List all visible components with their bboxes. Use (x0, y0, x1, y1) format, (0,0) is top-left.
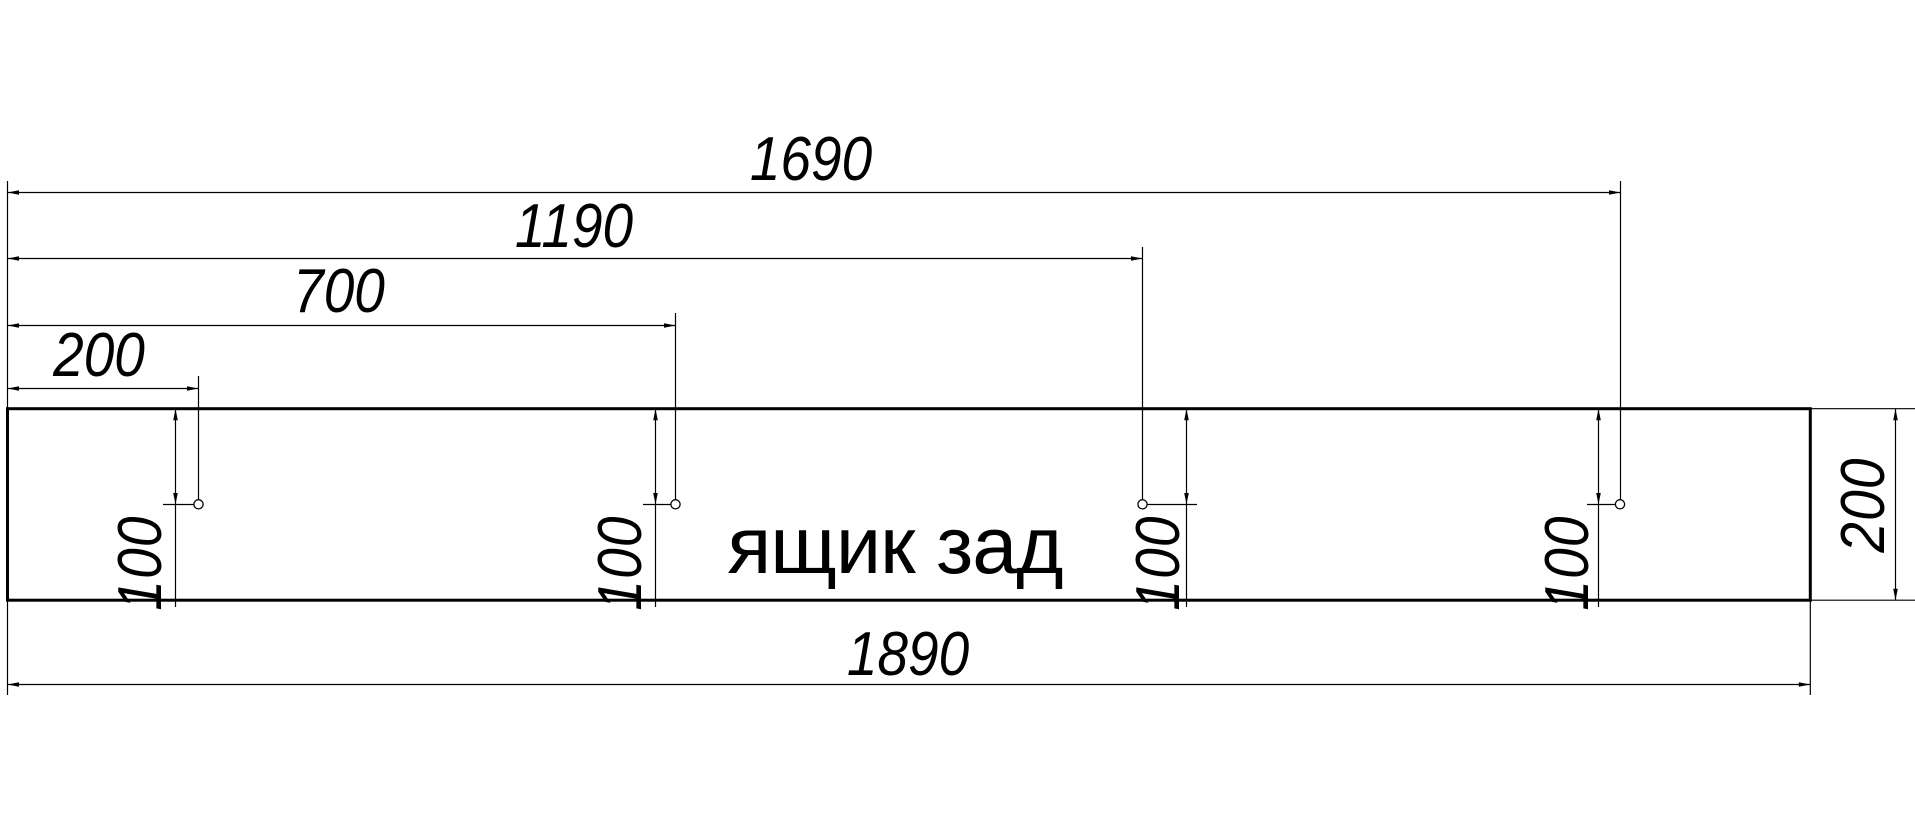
svg-text:200: 200 (52, 321, 145, 390)
svg-text:200: 200 (1829, 457, 1898, 553)
svg-text:1890: 1890 (847, 620, 970, 689)
svg-text:1190: 1190 (515, 192, 634, 261)
svg-text:100: 100 (106, 515, 175, 610)
svg-text:1690: 1690 (750, 125, 873, 194)
svg-text:700: 700 (293, 257, 385, 326)
svg-text:100: 100 (1124, 515, 1193, 610)
svg-text:100: 100 (1533, 515, 1602, 610)
svg-text:100: 100 (586, 515, 655, 610)
svg-text:ящик зад: ящик зад (727, 501, 1062, 591)
